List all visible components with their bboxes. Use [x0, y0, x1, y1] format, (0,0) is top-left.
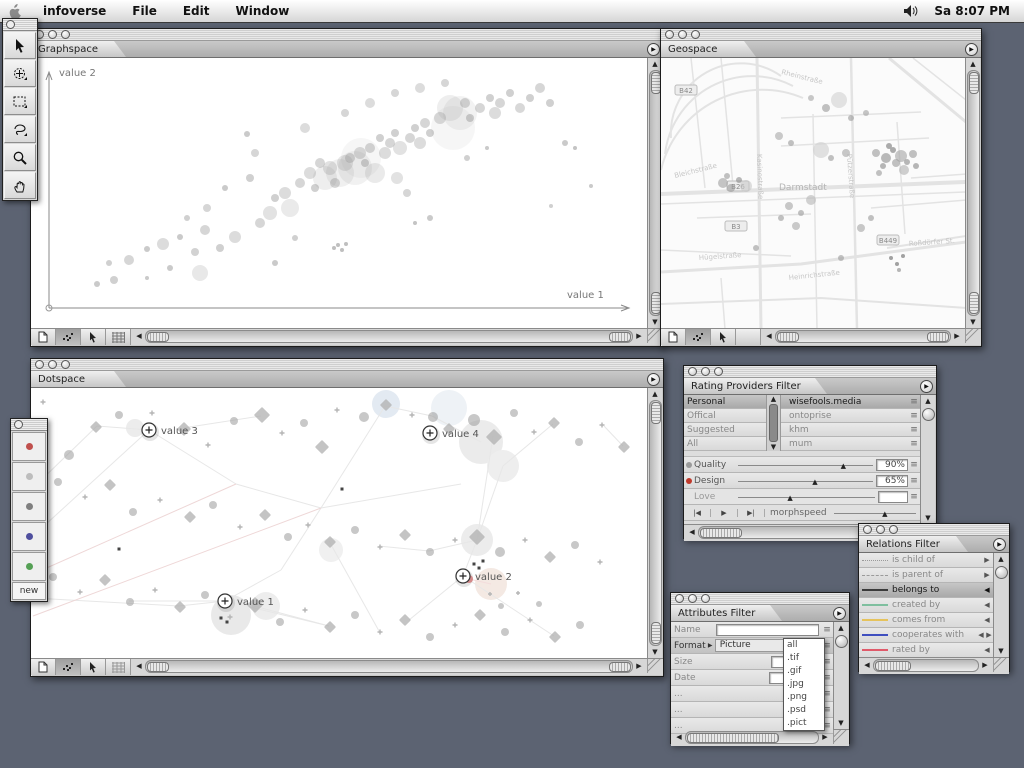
- slider-handle[interactable]: ▲: [841, 462, 846, 470]
- blue-dot-icon: [26, 533, 33, 540]
- format-option-png[interactable]: .png: [784, 691, 824, 704]
- scroll-up-icon[interactable]: ▲: [995, 553, 1007, 565]
- scroll-up-icon[interactable]: ▲: [835, 622, 847, 634]
- tool-pointer[interactable]: [4, 32, 36, 59]
- color-swatch-red[interactable]: [12, 432, 46, 461]
- provider-row[interactable]: khm≡: [781, 423, 920, 437]
- relation-row-is-child-of[interactable]: is child of▶: [859, 553, 993, 568]
- attr-row-name[interactable]: Name ≡: [671, 622, 833, 638]
- step-forward-button[interactable]: ▶|: [738, 509, 765, 517]
- svg-text:value 1: value 1: [237, 597, 274, 608]
- attr-label: ...: [671, 705, 714, 715]
- dotspace-canvas[interactable]: value 3value 4value 1value 2: [31, 388, 648, 658]
- scroll-left-icon[interactable]: ◀: [763, 330, 775, 342]
- app-menu[interactable]: infoverse: [30, 4, 119, 18]
- scroll-up-icon[interactable]: ▲: [649, 388, 661, 400]
- scroll-left-icon[interactable]: ◀: [861, 659, 873, 671]
- category-row-personal[interactable]: Personal: [684, 395, 766, 409]
- graphspace-canvas[interactable]: value 2value 1: [31, 58, 648, 328]
- relations-tabrow: Relations Filter ▶: [859, 536, 1009, 553]
- svg-text:value 2: value 2: [475, 572, 512, 583]
- view-table-button[interactable]: [106, 659, 131, 675]
- svg-text:B449: B449: [879, 237, 897, 245]
- row-menu-icon[interactable]: ≡: [908, 476, 920, 486]
- tool-palette: [2, 18, 38, 201]
- dotspace-tabrow: Dotspace ▶: [31, 371, 663, 388]
- speaker-icon[interactable]: [904, 5, 934, 17]
- relations-titlebar[interactable]: [859, 524, 1009, 536]
- svg-text:Kasinostraße: Kasinostraße: [755, 154, 765, 200]
- category-row-offical[interactable]: Offical: [684, 409, 766, 423]
- relation-label: comes from: [892, 615, 981, 625]
- close-button[interactable]: [863, 525, 872, 534]
- color-swatch-blue[interactable]: [12, 522, 46, 551]
- vscroll-thumb[interactable]: [651, 402, 661, 424]
- geospace-canvas[interactable]: RheinstraßeBleichstraßeHügelstraßeHeinri…: [661, 58, 966, 328]
- hscroll-thumb[interactable]: [147, 662, 169, 672]
- scroll-right-icon[interactable]: ▶: [951, 330, 963, 342]
- row-menu-icon[interactable]: ≡: [908, 439, 920, 449]
- menu-bar: infoverse File Edit Window Sa 8:07 PM: [0, 0, 1024, 23]
- provider-row[interactable]: mum≡: [781, 437, 920, 451]
- dotspace-vscrollbar[interactable]: ▲ ▼: [648, 388, 662, 658]
- slider-label: Quality: [694, 460, 738, 470]
- relations-vscrollbar[interactable]: ▲ ▼: [994, 553, 1008, 657]
- hscroll-track[interactable]: [145, 330, 633, 343]
- scroll-up-icon[interactable]: ▲: [967, 58, 979, 70]
- view-blank-cell[interactable]: [736, 329, 761, 345]
- scroll-up-icon[interactable]: ▲: [922, 395, 934, 407]
- scroll-down-icon[interactable]: ▼: [649, 646, 661, 658]
- attr-label: Date: [671, 673, 714, 683]
- hscroll-thumb[interactable]: [927, 332, 949, 342]
- row-menu-icon[interactable]: ≡: [908, 425, 920, 435]
- expand-right-icon[interactable]: ▶: [981, 554, 993, 566]
- name-input[interactable]: [716, 624, 819, 636]
- close-icon[interactable]: [6, 20, 15, 29]
- menu-edit[interactable]: Edit: [170, 4, 223, 18]
- rating-tabrow: Rating Providers Filter ▶: [684, 378, 936, 395]
- close-button[interactable]: [665, 30, 674, 39]
- view-pointer-button[interactable]: [81, 329, 106, 345]
- relation-row-rated-by[interactable]: rated by◀: [859, 643, 993, 657]
- category-label: Personal: [687, 397, 725, 407]
- close-button[interactable]: [675, 594, 684, 603]
- hscroll-track[interactable]: [775, 330, 951, 343]
- attributes-tabrow: Attributes Filter ▶: [671, 605, 849, 622]
- hscroll-thumb[interactable]: [687, 733, 779, 743]
- color-swatch-gray[interactable]: [12, 492, 46, 521]
- geospace-titlebar[interactable]: [661, 29, 981, 41]
- format-option-tif[interactable]: .tif: [784, 652, 824, 665]
- row-menu-icon[interactable]: ≡: [821, 625, 833, 635]
- geospace-hscrollbar[interactable]: ◀ ▶: [761, 329, 965, 343]
- collapse-left-icon[interactable]: ◀: [981, 584, 993, 596]
- dotspace-bottombar: ◀ ▶: [31, 658, 663, 675]
- design-dot-icon: [684, 478, 694, 484]
- attr-label: ...: [671, 721, 714, 731]
- view-document-button[interactable]: [31, 659, 56, 675]
- play-button[interactable]: ▶: [711, 509, 738, 517]
- view-table-button[interactable]: [106, 329, 131, 345]
- graphspace-bottombar: ◀ ▶: [31, 328, 663, 345]
- row-menu-icon[interactable]: ≡: [908, 492, 920, 502]
- tab-popup-button[interactable]: ▶: [647, 43, 660, 56]
- view-document-button[interactable]: [661, 329, 686, 345]
- hscroll-thumb[interactable]: [147, 332, 169, 342]
- zoom-button[interactable]: [889, 525, 898, 534]
- scroll-right-icon[interactable]: ▶: [979, 659, 991, 671]
- resize-grip[interactable]: [833, 730, 849, 744]
- row-menu-icon[interactable]: ≡: [908, 411, 920, 421]
- morph-transport-row: |◀ ▶ ▶| morphspeed ▲: [684, 505, 920, 521]
- hscroll-track[interactable]: [145, 660, 633, 673]
- scroll-up-icon[interactable]: ▲: [768, 395, 780, 403]
- tool-lasso[interactable]: [4, 116, 36, 143]
- scroll-left-icon[interactable]: ◀: [133, 330, 145, 342]
- row-menu-icon[interactable]: ≡: [908, 397, 920, 407]
- slider-handle[interactable]: ▲: [787, 494, 792, 502]
- minimize-button[interactable]: [688, 594, 697, 603]
- attr-label: Size: [671, 657, 714, 667]
- attributes-hscrollbar[interactable]: ◀ ▶: [671, 730, 833, 744]
- minimize-button[interactable]: [876, 525, 885, 534]
- relation-row-is-parent-of[interactable]: is parent of▶: [859, 568, 993, 583]
- vscroll-ball-thumb[interactable]: [922, 408, 935, 421]
- tool-marquee[interactable]: [4, 88, 36, 115]
- provider-label: khm: [789, 425, 908, 435]
- hscroll-track[interactable]: [873, 659, 979, 672]
- graphspace-tabrow: Graphspace ▶: [31, 41, 663, 58]
- relations-hscrollbar[interactable]: ◀ ▶: [859, 658, 993, 672]
- quality-slider[interactable]: ▲: [738, 459, 873, 471]
- hscroll-track[interactable]: [685, 731, 819, 744]
- quality-dot-icon: [684, 462, 694, 468]
- slider-handle[interactable]: ▲: [882, 510, 887, 518]
- svg-text:B3: B3: [731, 223, 740, 231]
- vscroll-thumb[interactable]: [651, 622, 661, 644]
- hscroll-thumb[interactable]: [700, 528, 742, 538]
- tab-popup-button[interactable]: ▶: [993, 538, 1006, 551]
- provider-row[interactable]: wisefools.media≡: [781, 395, 920, 409]
- geospace-vscrollbar[interactable]: ▲ ▼: [966, 58, 980, 328]
- relation-label: cooperates with: [892, 630, 977, 640]
- color-palette-titlebar[interactable]: [11, 419, 47, 431]
- scroll-right-icon[interactable]: ▶: [633, 660, 645, 672]
- rating-providers-filter-window: Rating Providers Filter ▶ Personal Offic…: [683, 365, 937, 539]
- slider-row-love[interactable]: Love ▲ ≡: [684, 489, 920, 505]
- svg-text:value 3: value 3: [161, 426, 198, 437]
- vscroll-track[interactable]: [967, 70, 980, 316]
- provider-row[interactable]: ontoprise≡: [781, 409, 920, 423]
- collapse-left-icon[interactable]: ◀: [981, 599, 993, 611]
- zoom-button[interactable]: [714, 367, 723, 376]
- resize-grip[interactable]: [965, 329, 981, 343]
- minimize-button[interactable]: [678, 30, 687, 39]
- green-dot-icon: [26, 563, 33, 570]
- slider-label: Design: [694, 476, 738, 486]
- scroll-down-icon[interactable]: ▼: [967, 316, 979, 328]
- minimize-button[interactable]: [701, 367, 710, 376]
- attributes-body: Name ≡ Format ▶ Picture ▶ ≡ Size ≡ Date: [671, 622, 834, 729]
- rating-category-column: Personal Offical Suggested All: [684, 395, 766, 451]
- scroll-down-icon[interactable]: ▼: [768, 443, 780, 451]
- expand-right-icon[interactable]: ▶: [985, 629, 993, 641]
- gray-dot-icon: [26, 503, 33, 510]
- zoom-button[interactable]: [61, 360, 70, 369]
- color-swatch-lightgray[interactable]: [12, 462, 46, 491]
- format-options-dropdown: all .tif .gif .jpg .png .psd .pict: [783, 638, 825, 731]
- format-option-jpg[interactable]: .jpg: [784, 678, 824, 691]
- step-back-button[interactable]: |◀: [684, 509, 711, 517]
- dotspace-network: value 3value 4value 1value 2: [31, 388, 647, 658]
- minimize-button[interactable]: [48, 360, 57, 369]
- color-swatch-green[interactable]: [12, 552, 46, 581]
- close-icon[interactable]: [14, 420, 23, 429]
- graphspace-hscrollbar[interactable]: ◀ ▶: [131, 329, 647, 343]
- vscroll-thumb[interactable]: [969, 72, 979, 94]
- tab-dotspace[interactable]: Dotspace: [31, 371, 126, 387]
- tool-zoom[interactable]: [4, 144, 36, 171]
- submenu-arrow-icon[interactable]: ▶: [706, 640, 715, 652]
- provider-label: wisefools.media: [789, 397, 908, 407]
- collapse-left-icon[interactable]: ◀: [981, 614, 993, 626]
- scroll-down-icon[interactable]: ▼: [995, 645, 1007, 657]
- vscroll-thumb[interactable]: [969, 292, 979, 314]
- design-slider[interactable]: ▲: [738, 475, 873, 487]
- graphspace-window: Graphspace ▶ value 2value 1 ▲ ▼ ◀ ▶: [30, 28, 664, 347]
- vscroll-ball-thumb[interactable]: [995, 566, 1008, 579]
- attributes-titlebar[interactable]: [671, 593, 849, 605]
- close-button[interactable]: [688, 367, 697, 376]
- tab-geospace[interactable]: Geospace: [661, 41, 756, 57]
- dotspace-window: Dotspace ▶ value 3value 4value 1value 2 …: [30, 358, 664, 677]
- tab-popup-button[interactable]: ▶: [833, 607, 846, 620]
- slider-handle[interactable]: ▲: [812, 478, 817, 486]
- love-value-field[interactable]: [878, 491, 908, 503]
- geospace-window: Geospace ▶ RheinstraßeBleichstraßeHügels…: [660, 28, 982, 347]
- scroll-left-icon[interactable]: ◀: [686, 526, 698, 538]
- view-document-button[interactable]: [31, 329, 56, 345]
- hscroll-thumb[interactable]: [609, 662, 631, 672]
- svg-text:value 2: value 2: [59, 68, 96, 79]
- tool-target-select[interactable]: [4, 60, 36, 87]
- dotspace-hscrollbar[interactable]: ◀ ▶: [131, 659, 647, 673]
- lightgray-dot-icon: [26, 473, 33, 480]
- relation-label: rated by: [892, 645, 981, 655]
- svg-text:value 4: value 4: [442, 429, 479, 440]
- scroll-right-icon[interactable]: ▶: [633, 330, 645, 342]
- new-color-button[interactable]: new: [12, 582, 46, 600]
- format-option-pict[interactable]: .pict: [784, 717, 824, 730]
- relation-label: is child of: [892, 555, 981, 565]
- format-option-all[interactable]: all: [784, 639, 824, 652]
- tab-rating-providers-filter[interactable]: Rating Providers Filter: [684, 378, 827, 394]
- attr-label: Format: [671, 641, 706, 651]
- geospace-bottombar: ◀ ▶: [661, 328, 981, 345]
- category-label: All: [687, 439, 698, 449]
- slider-label: Love: [694, 492, 738, 502]
- relation-row-belongs-to[interactable]: belongs to◀: [859, 583, 993, 598]
- category-list-scrollbar[interactable]: ▲ ▼: [766, 395, 781, 451]
- view-scatter-button[interactable]: [56, 659, 81, 675]
- attributes-filter-window: Attributes Filter ▶ Name ≡ Format ▶ Pict…: [670, 592, 850, 744]
- tab-popup-button[interactable]: ▶: [647, 373, 660, 386]
- scroll-down-icon[interactable]: ▼: [835, 717, 847, 729]
- attr-label: Name: [671, 625, 714, 635]
- scroll-left-icon[interactable]: ◀: [133, 660, 145, 672]
- slider-row-quality[interactable]: Quality ▲ 90% ≡: [684, 457, 920, 473]
- resize-grip[interactable]: [647, 659, 663, 673]
- geospace-map: RheinstraßeBleichstraßeHügelstraßeHeinri…: [661, 58, 965, 328]
- provider-label: mum: [789, 439, 908, 449]
- row-menu-icon[interactable]: ≡: [908, 460, 920, 470]
- vscroll-thumb[interactable]: [651, 292, 661, 314]
- category-row-all[interactable]: All: [684, 437, 766, 451]
- relations-filter-window: Relations Filter ▶ is child of▶ is paren…: [858, 523, 1010, 672]
- minimize-button[interactable]: [48, 30, 57, 39]
- morphspeed-slider[interactable]: ▲: [834, 507, 916, 519]
- tool-palette-titlebar[interactable]: [3, 19, 37, 31]
- rating-vscrollbar[interactable]: ▲ ▼: [921, 395, 935, 524]
- relation-label: created by: [892, 600, 981, 610]
- vscroll-thumb[interactable]: [651, 72, 661, 94]
- category-label: Offical: [687, 411, 716, 421]
- relation-label: belongs to: [892, 585, 981, 595]
- zoom-button[interactable]: [701, 594, 710, 603]
- graphspace-scatter: value 2value 1: [31, 58, 647, 328]
- rating-provider-column: wisefools.media≡ ontoprise≡ khm≡ mum≡: [781, 395, 920, 451]
- resize-grip[interactable]: [993, 658, 1009, 672]
- tool-hand[interactable]: [4, 172, 36, 199]
- zoom-button[interactable]: [61, 30, 70, 39]
- relations-bottombar: ◀ ▶: [859, 657, 1009, 674]
- tab-attributes-filter[interactable]: Attributes Filter: [671, 605, 782, 621]
- rating-titlebar[interactable]: [684, 366, 936, 378]
- hscroll-thumb[interactable]: [875, 661, 911, 671]
- attributes-vscrollbar[interactable]: ▲ ▼: [834, 622, 848, 729]
- relation-row-created-by[interactable]: created by◀: [859, 598, 993, 613]
- list-scroll-thumb[interactable]: [769, 404, 778, 442]
- tab-popup-button[interactable]: ▶: [965, 43, 978, 56]
- view-pointer-button[interactable]: [711, 329, 736, 345]
- relation-row-comes-from[interactable]: comes from◀: [859, 613, 993, 628]
- menubar-clock[interactable]: Sa 8:07 PM: [934, 4, 1024, 18]
- svg-text:value 1: value 1: [567, 290, 604, 301]
- apple-menu-icon[interactable]: [0, 4, 30, 19]
- close-button[interactable]: [35, 360, 44, 369]
- vscroll-ball-thumb[interactable]: [835, 635, 848, 648]
- format-option-psd[interactable]: .psd: [784, 704, 824, 717]
- relation-label: is parent of: [892, 570, 981, 580]
- vscroll-track[interactable]: [649, 400, 662, 646]
- menu-window[interactable]: Window: [222, 4, 302, 18]
- hscroll-thumb[interactable]: [777, 332, 799, 342]
- category-row-suggested[interactable]: Suggested: [684, 423, 766, 437]
- color-palette: new: [10, 418, 48, 602]
- svg-text:B42: B42: [679, 87, 693, 95]
- collapse-left-icon[interactable]: ◀: [977, 629, 985, 641]
- morphspeed-label: morphspeed: [765, 508, 834, 518]
- graphspace-titlebar[interactable]: [31, 29, 663, 41]
- expand-right-icon[interactable]: ▶: [981, 569, 993, 581]
- relations-body: is child of▶ is parent of▶ belongs to◀ c…: [859, 553, 994, 657]
- provider-label: ontoprise: [789, 411, 908, 421]
- hscroll-thumb[interactable]: [609, 332, 631, 342]
- svg-text:Darmstadt: Darmstadt: [779, 183, 827, 193]
- menu-file[interactable]: File: [119, 4, 170, 18]
- format-option-gif[interactable]: .gif: [784, 665, 824, 678]
- category-label: Suggested: [687, 425, 735, 435]
- love-slider[interactable]: ▲: [738, 491, 875, 503]
- tab-popup-button[interactable]: ▶: [920, 380, 933, 393]
- quality-value-field[interactable]: 90%: [876, 459, 908, 471]
- slider-row-design[interactable]: Design ▲ 65% ≡: [684, 473, 920, 489]
- collapse-left-icon[interactable]: ◀: [981, 644, 993, 656]
- view-scatter-button[interactable]: [686, 329, 711, 345]
- red-dot-icon: [26, 443, 33, 450]
- attr-label: ...: [671, 689, 714, 699]
- view-scatter-button[interactable]: [56, 329, 81, 345]
- tab-relations-filter[interactable]: Relations Filter: [859, 536, 968, 552]
- rating-body: Personal Offical Suggested All ▲ ▼ wisef…: [684, 395, 921, 524]
- dotspace-titlebar[interactable]: [31, 359, 663, 371]
- design-value-field[interactable]: 65%: [876, 475, 908, 487]
- geospace-tabrow: Geospace ▶: [661, 41, 981, 58]
- zoom-button[interactable]: [691, 30, 700, 39]
- view-pointer-button[interactable]: [81, 659, 106, 675]
- relation-row-cooperates-with[interactable]: cooperates with◀▶: [859, 628, 993, 643]
- tab-graphspace[interactable]: Graphspace: [31, 41, 126, 57]
